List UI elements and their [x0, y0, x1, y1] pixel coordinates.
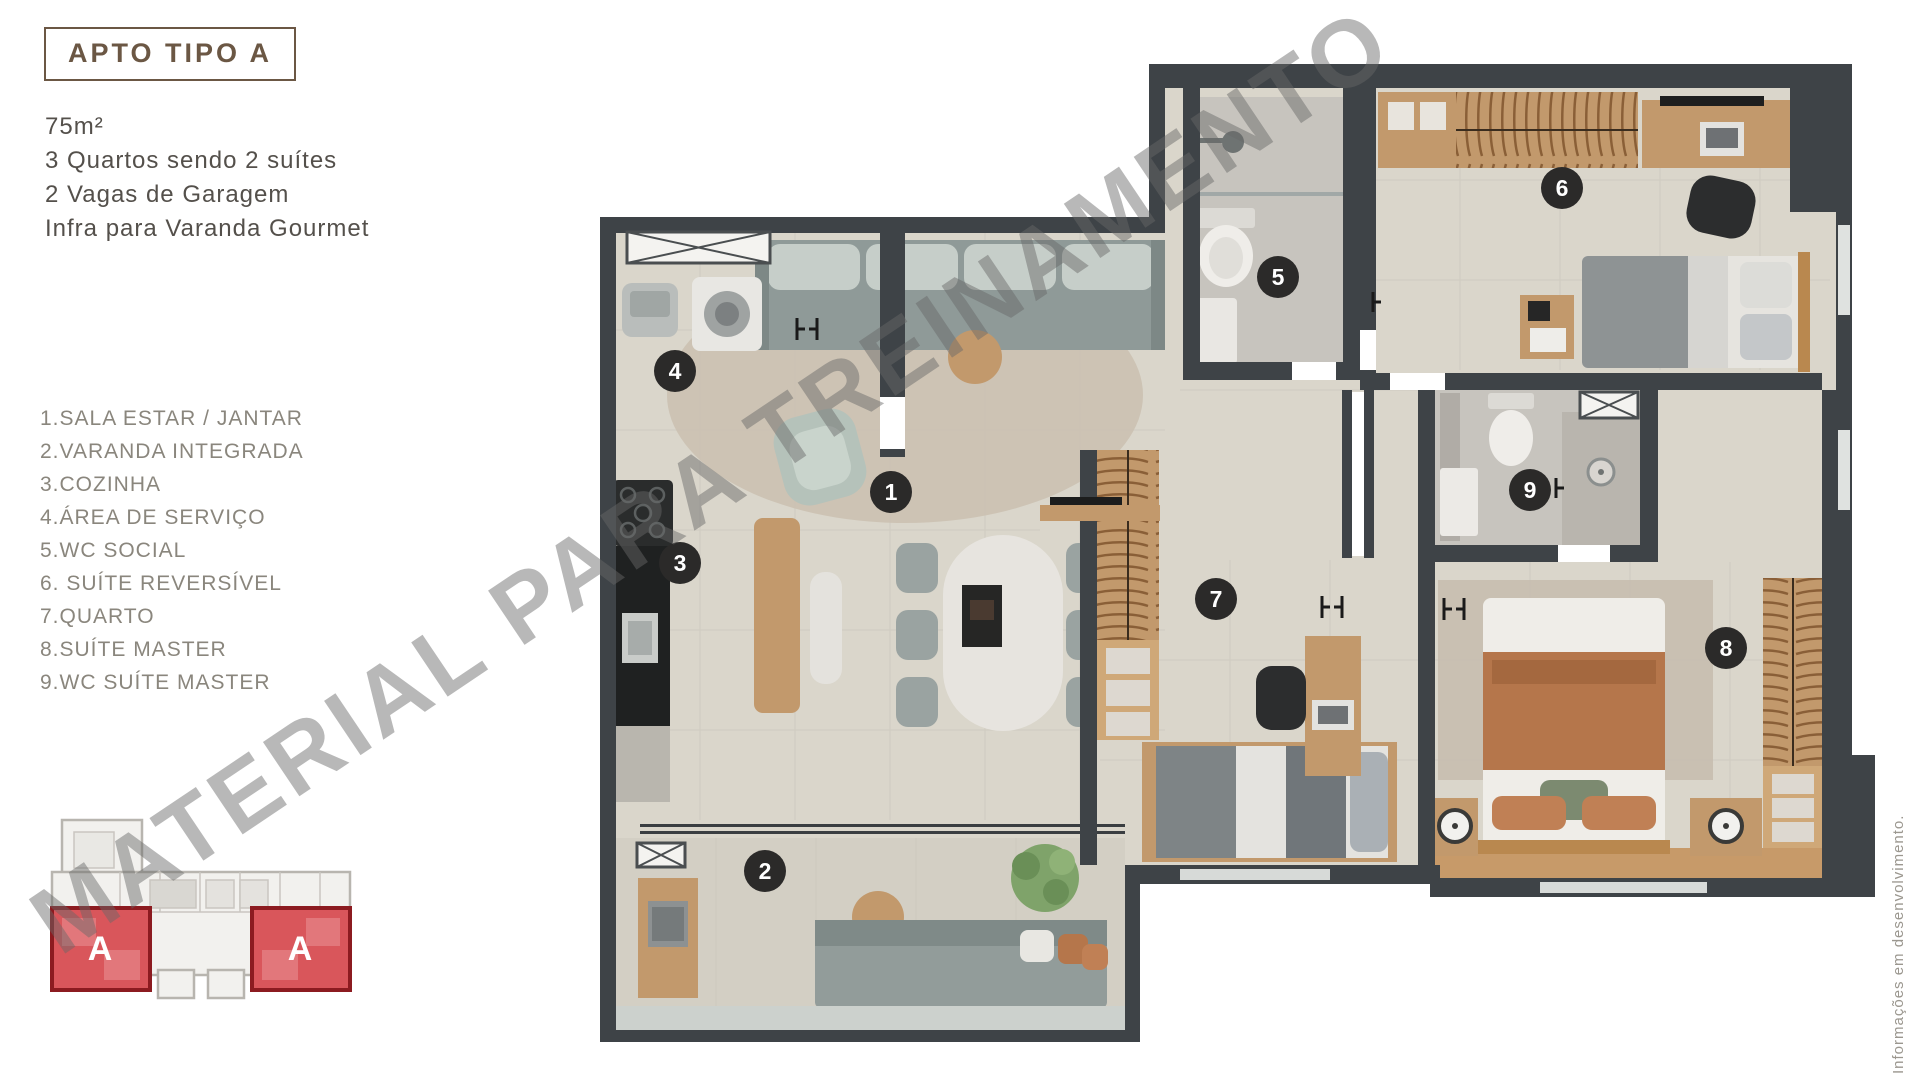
double-bed [1478, 598, 1670, 854]
key-plan: A A [52, 820, 350, 998]
room-marker-7: 7 [1195, 578, 1237, 620]
room-marker-9: 9 [1509, 469, 1551, 511]
room-legend: 1.SALA ESTAR / JANTAR 2.VARANDA INTEGRAD… [40, 402, 304, 699]
svg-text:7: 7 [1210, 586, 1223, 612]
room-marker-6: 6 [1541, 167, 1583, 209]
kitchen-furniture [613, 480, 673, 802]
legend-item-2: 2.VARANDA INTEGRADA [40, 435, 304, 468]
single-bed [1582, 252, 1810, 372]
svg-text:A: A [288, 930, 313, 968]
spec-list: 75m² 3 Quartos sendo 2 suítes 2 Vagas de… [45, 110, 369, 246]
legend-item-7: 7.QUARTO [40, 600, 304, 633]
unit-highlight-a-left: A [52, 908, 150, 990]
svg-text:5: 5 [1272, 264, 1285, 290]
closet [1378, 92, 1638, 168]
varanda-sofa [815, 920, 1108, 1008]
legend-item-5: 5.WC SOCIAL [40, 534, 304, 567]
master-closet [1763, 578, 1823, 848]
legend-item-6: 6. SUÍTE REVERSÍVEL [40, 567, 304, 600]
room-marker-4: 4 [654, 350, 696, 392]
shower-glass [1200, 192, 1343, 196]
desk [1642, 96, 1790, 168]
hatch-window-icon [1580, 392, 1638, 418]
toilet [1488, 393, 1534, 466]
legend-item-1: 1.SALA ESTAR / JANTAR [40, 402, 304, 435]
spec-parking: 2 Vagas de Garagem [45, 178, 369, 212]
desk [1305, 636, 1361, 776]
desk-chair [1256, 666, 1306, 730]
svg-text:1: 1 [885, 479, 898, 505]
development-footnote: Informações em desenvolvimento. [1890, 815, 1907, 1074]
svg-text:3: 3 [674, 550, 687, 576]
hatch-window-icon [637, 843, 685, 867]
svg-text:4: 4 [669, 358, 682, 384]
wc-sink-cabinet [1195, 298, 1237, 364]
side-table [948, 330, 1002, 384]
svg-text:A: A [88, 930, 113, 968]
room-marker-3: 3 [659, 542, 701, 584]
title-box: APTO TIPO A [44, 27, 296, 81]
toilet [1197, 208, 1255, 287]
dining-island [943, 535, 1063, 731]
spec-bedrooms: 3 Quartos sendo 2 suítes [45, 144, 369, 178]
page-title: APTO TIPO A [68, 38, 272, 69]
legend-item-4: 4.ÁREA DE SERVIÇO [40, 501, 304, 534]
svg-text:2: 2 [759, 858, 772, 884]
svg-text:9: 9 [1524, 477, 1537, 503]
legend-item-9: 9.WC SUÍTE MASTER [40, 666, 304, 699]
spec-gourmet: Infra para Varanda Gourmet [45, 212, 369, 246]
suite-master-furniture [1432, 578, 1823, 856]
nightstand [1520, 295, 1574, 359]
white-bench [810, 572, 842, 684]
plant [1011, 844, 1079, 912]
hatch-window-icon [627, 232, 770, 263]
unit-highlight-a-right: A [252, 908, 350, 990]
room-marker-5: 5 [1257, 256, 1299, 298]
svg-text:8: 8 [1720, 635, 1733, 661]
room-marker-2: 2 [744, 850, 786, 892]
washing-machine [692, 277, 762, 351]
spec-area: 75m² [45, 110, 369, 144]
kitchen-cabinet [616, 726, 670, 802]
room-marker-8: 8 [1705, 627, 1747, 669]
legend-item-3: 3.COZINHA [40, 468, 304, 501]
wc-vanity [1440, 468, 1478, 536]
gourmet-counter [638, 878, 698, 998]
wood-bench [754, 518, 800, 713]
room-marker-1: 1 [870, 471, 912, 513]
legend-item-8: 8.SUÍTE MASTER [40, 633, 304, 666]
closet [1097, 450, 1159, 740]
svg-text:6: 6 [1556, 175, 1569, 201]
shower-area [1562, 412, 1640, 545]
